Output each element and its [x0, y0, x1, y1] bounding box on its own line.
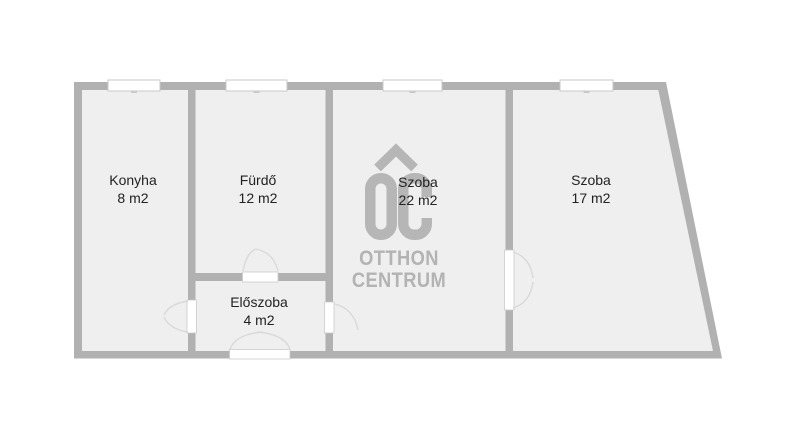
- watermark-line1: OTTHON: [359, 247, 439, 269]
- room-label-szoba-17: Szoba 17 m2: [571, 171, 611, 207]
- room-name: Szoba: [571, 171, 611, 189]
- window-tick: [584, 91, 590, 94]
- door-leaf-konyha: [187, 300, 197, 333]
- room-name: Konyha: [109, 171, 156, 189]
- room-label-szoba-22: Szoba 22 m2: [398, 173, 438, 209]
- floorplan-drawing: [0, 0, 800, 439]
- room-area: 4 m2: [230, 311, 288, 329]
- window-konyha: [108, 80, 160, 91]
- room-area: 22 m2: [398, 191, 438, 209]
- room-area: 8 m2: [109, 189, 156, 207]
- window-furdo: [226, 80, 287, 91]
- window-tick: [131, 91, 137, 94]
- window-szoba17: [560, 80, 613, 91]
- wall-szoba22-szoba17: [506, 90, 514, 351]
- watermark-line2: CENTRUM: [352, 269, 446, 291]
- room-name: Szoba: [398, 173, 438, 191]
- room-label-eloszoba: Előszoba 4 m2: [230, 293, 288, 329]
- room-name: Fürdő: [239, 171, 278, 189]
- door-leaf-entrance: [230, 350, 291, 360]
- floor-area: [82, 90, 713, 351]
- room-label-konyha: Konyha 8 m2: [109, 171, 156, 207]
- room-label-furdo: Fürdő 12 m2: [239, 171, 278, 207]
- room-area: 12 m2: [239, 189, 278, 207]
- window-tick: [254, 91, 260, 94]
- room-area: 17 m2: [571, 189, 611, 207]
- window-szoba22: [383, 80, 442, 91]
- room-name: Előszoba: [230, 293, 288, 311]
- door-leaf-furdo: [243, 272, 279, 282]
- window-tick: [410, 91, 416, 94]
- door-leaf-szoba22: [325, 302, 335, 333]
- door-leaf-szoba17: [505, 250, 515, 310]
- floorplan-image: Konyha 8 m2 Fürdő 12 m2 Szoba 22 m2 Szob…: [0, 0, 800, 439]
